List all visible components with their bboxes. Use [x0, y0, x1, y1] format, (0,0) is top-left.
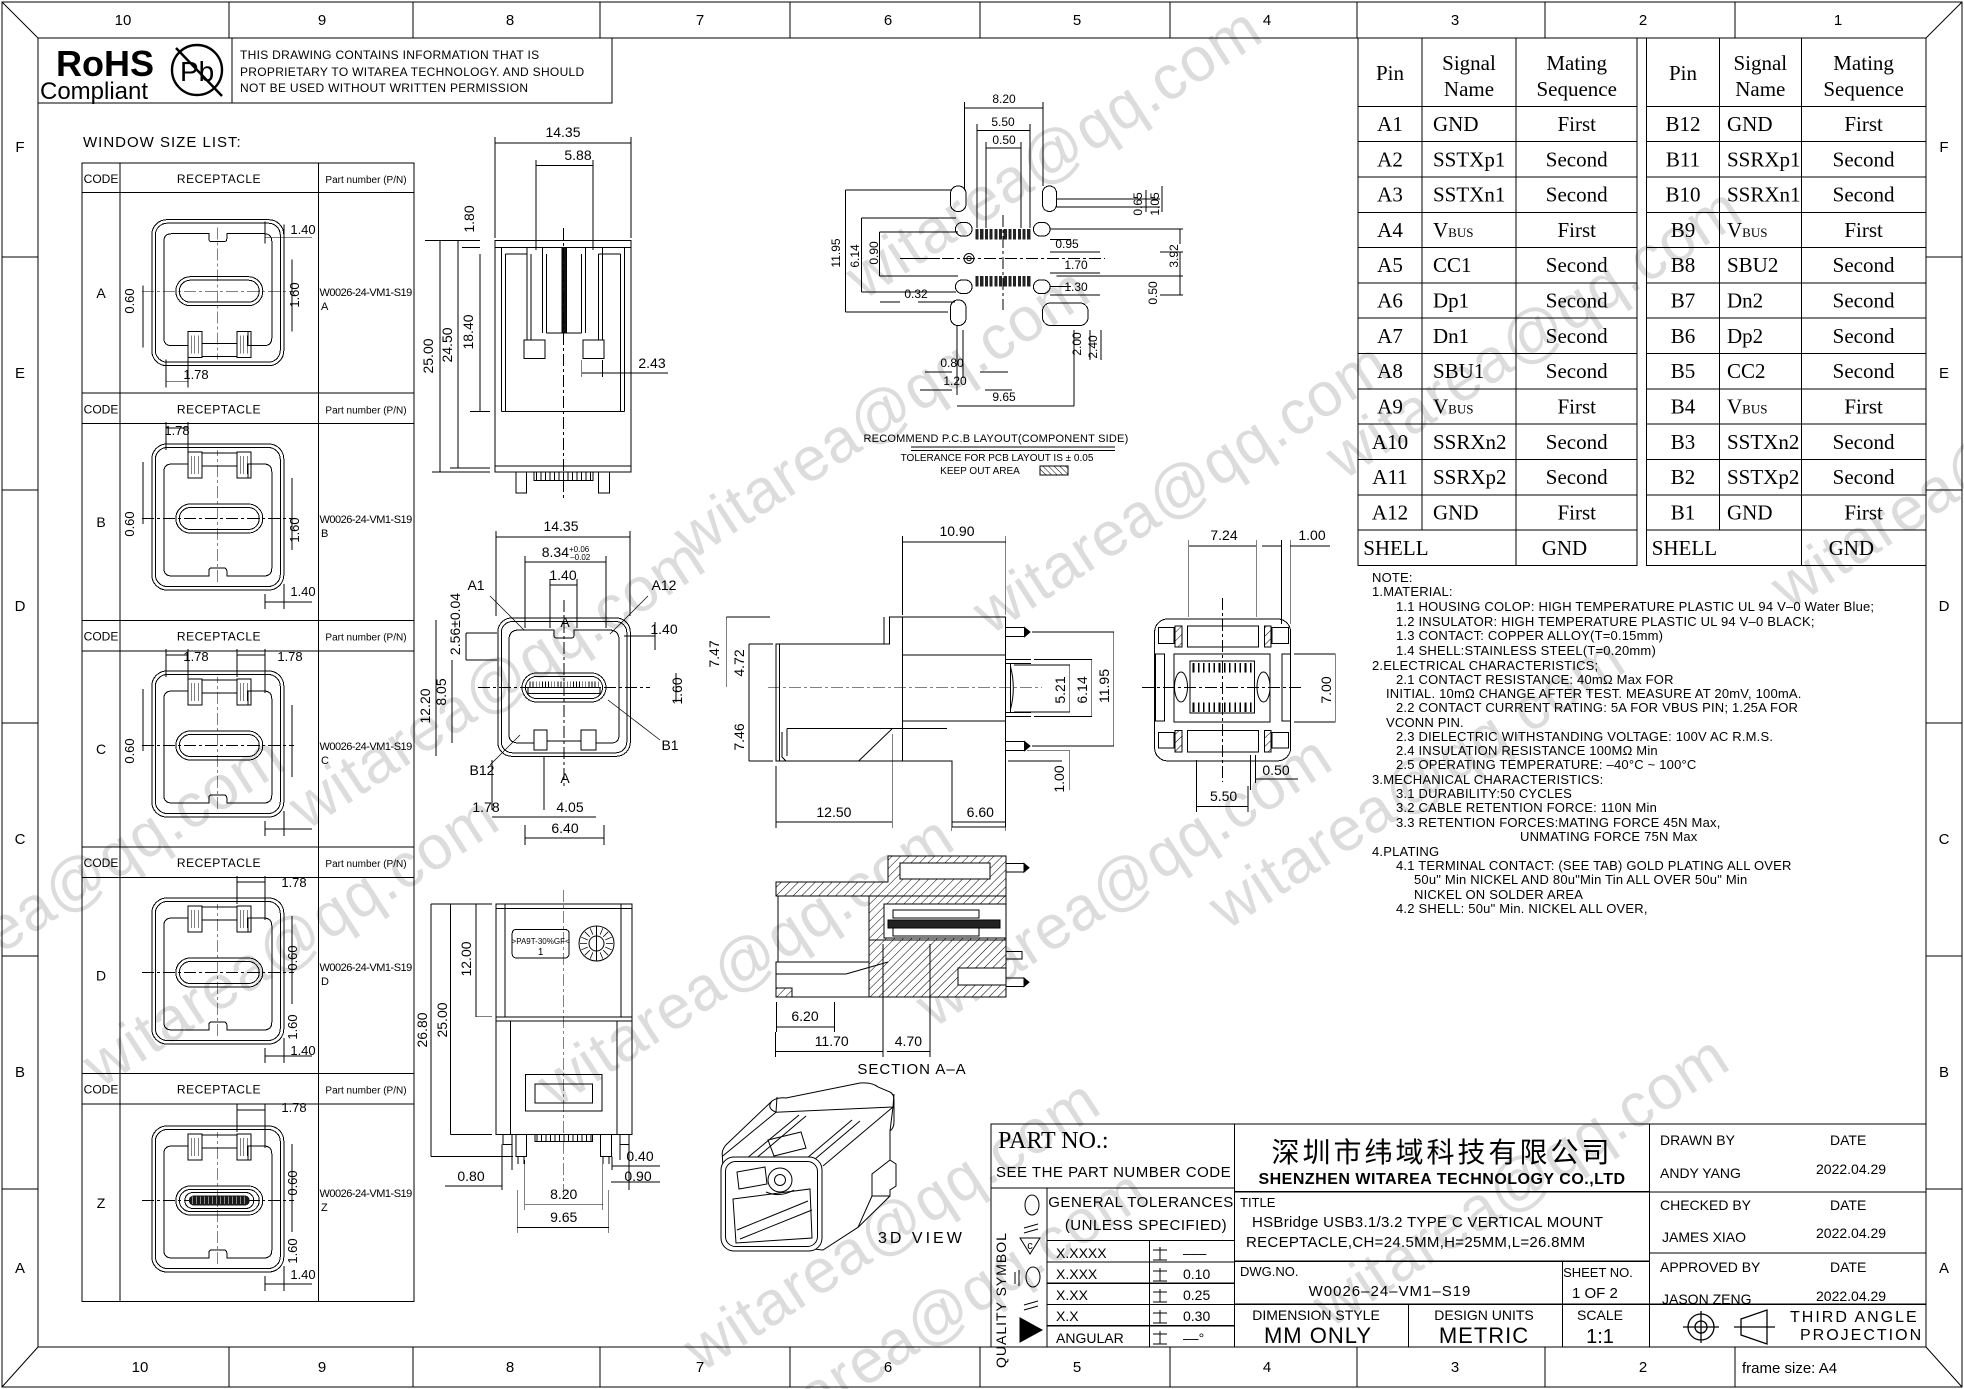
svg-text:TITLE: TITLE	[1240, 1195, 1276, 1210]
svg-text:A10: A10	[1372, 430, 1408, 454]
svg-text:Second: Second	[1833, 324, 1895, 348]
svg-text:X.XX: X.XX	[1056, 1287, 1089, 1303]
svg-text:W0026-24-VM1-S19: W0026-24-VM1-S19	[320, 741, 413, 753]
svg-text:Z: Z	[321, 1202, 328, 1214]
svg-text:Dp2: Dp2	[1727, 324, 1763, 348]
svg-text:3.3 RETENTION FORCES:MATING F: 3.3 RETENTION FORCES:MATING FORCE 45N Ma…	[1396, 815, 1721, 830]
svg-text:Mating: Mating	[1833, 51, 1894, 75]
svg-text:2.4 INSULATION RESISTANCE 100: 2.4 INSULATION RESISTANCE 100MΩ Min	[1396, 743, 1658, 758]
svg-text:1.00: 1.00	[1051, 765, 1067, 792]
svg-text:Pb: Pb	[180, 56, 214, 87]
svg-text:W0026-24-VM1-S19: W0026-24-VM1-S19	[320, 962, 413, 974]
svg-text:A3: A3	[1377, 183, 1403, 207]
svg-text:PROJECTION: PROJECTION	[1800, 1327, 1923, 1344]
svg-text:Second: Second	[1546, 147, 1608, 171]
svg-text:0.10: 0.10	[1183, 1266, 1210, 1282]
svg-text:2022.04.29: 2022.04.29	[1816, 1225, 1886, 1241]
svg-text:25.00: 25.00	[420, 338, 436, 373]
svg-text:1.60: 1.60	[285, 1014, 300, 1039]
svg-text:11.95: 11.95	[1096, 669, 1112, 703]
svg-text:3: 3	[1451, 1359, 1459, 1376]
svg-text:1.78: 1.78	[183, 649, 208, 664]
svg-text:0.80: 0.80	[940, 356, 964, 370]
svg-text:RECEPTACLE: RECEPTACLE	[177, 172, 261, 186]
svg-text:6.14: 6.14	[848, 244, 862, 268]
svg-text:2.40: 2.40	[1086, 335, 1100, 359]
svg-text:Second: Second	[1833, 430, 1895, 454]
svg-text:A1: A1	[1377, 112, 1403, 136]
svg-text:50u" Min NICKEL AND 80u"Min Ti: 50u" Min NICKEL AND 80u"Min Tin ALL OVER…	[1414, 872, 1747, 887]
svg-text:c: c	[1027, 1240, 1033, 1252]
svg-text:B9: B9	[1671, 218, 1696, 242]
svg-text:RECEPTACLE: RECEPTACLE	[177, 1083, 261, 1097]
svg-text:B: B	[15, 1064, 25, 1081]
svg-text:1.78: 1.78	[281, 875, 306, 890]
svg-text:10: 10	[115, 12, 132, 29]
svg-text:A: A	[96, 285, 106, 301]
svg-text:6.60: 6.60	[967, 804, 994, 820]
svg-text:1.20: 1.20	[943, 374, 967, 388]
svg-text:METRIC: METRIC	[1439, 1323, 1529, 1348]
svg-text:GND: GND	[1433, 112, 1479, 136]
svg-text:DIMENSION STYLE: DIMENSION STYLE	[1252, 1307, 1380, 1323]
svg-text:Name: Name	[1735, 77, 1785, 101]
svg-text:8.20: 8.20	[550, 1186, 577, 1202]
svg-text:0.65: 0.65	[1131, 192, 1145, 216]
svg-text:JAMES XIAO: JAMES XIAO	[1662, 1229, 1746, 1245]
svg-text:5.21: 5.21	[1052, 676, 1068, 703]
svg-text:0.90: 0.90	[624, 1168, 651, 1184]
svg-text:11.70: 11.70	[815, 1033, 849, 1049]
svg-text:(UNLESS SPECIFIED): (UNLESS SPECIFIED)	[1065, 1217, 1227, 1234]
svg-text:Z: Z	[97, 1195, 106, 1211]
svg-text:D: D	[96, 967, 106, 983]
svg-text:18.40: 18.40	[460, 314, 476, 349]
svg-text:1.3 CONTACT: COPPER ALLOY(T=0: 1.3 CONTACT: COPPER ALLOY(T=0.15mm)	[1396, 628, 1663, 643]
svg-text:A12: A12	[652, 577, 677, 593]
svg-text:––°: ––°	[1183, 1330, 1204, 1346]
svg-text:F: F	[15, 139, 24, 156]
svg-text:Signal: Signal	[1442, 51, 1496, 75]
svg-text:CODE: CODE	[84, 856, 119, 870]
svg-text:First: First	[1844, 501, 1883, 525]
svg-text:A4: A4	[1377, 218, 1403, 242]
svg-text:1.MATERIAL:: 1.MATERIAL:	[1372, 584, 1453, 599]
svg-text:NICKEL ON SOLDER AREA: NICKEL ON SOLDER AREA	[1414, 887, 1583, 902]
svg-text:Second: Second	[1546, 253, 1608, 277]
svg-text:Mating: Mating	[1546, 51, 1607, 75]
svg-text:0.60: 0.60	[122, 288, 137, 313]
svg-text:2.5 OPERATING TEMPERATURE: –4: 2.5 OPERATING TEMPERATURE: –40°C ~ 100°C	[1396, 757, 1697, 772]
svg-text:2.56±0.04: 2.56±0.04	[447, 593, 463, 655]
svg-text:W0026-24-VM1-S19: W0026-24-VM1-S19	[320, 287, 413, 299]
svg-text:Compliant: Compliant	[40, 78, 148, 105]
svg-text:B11: B11	[1666, 147, 1700, 171]
svg-text:8: 8	[506, 1359, 514, 1376]
svg-text:7.00: 7.00	[1318, 676, 1334, 703]
svg-text:6: 6	[884, 12, 892, 29]
svg-text:X.X: X.X	[1056, 1308, 1079, 1324]
svg-text:X.XXX: X.XXX	[1056, 1266, 1098, 1282]
svg-text:5.88: 5.88	[564, 147, 591, 163]
svg-text:1.00: 1.00	[1298, 527, 1325, 543]
svg-text:B: B	[321, 528, 328, 540]
svg-text:10.90: 10.90	[939, 523, 974, 539]
svg-text:X.XXXX: X.XXXX	[1056, 1245, 1107, 1261]
svg-text:4.05: 4.05	[556, 799, 583, 815]
svg-text:12.20: 12.20	[417, 688, 433, 723]
svg-text:A11: A11	[1372, 465, 1407, 489]
svg-text:深圳市纬域科技有限公司: 深圳市纬域科技有限公司	[1271, 1137, 1612, 1168]
svg-text:1.40: 1.40	[290, 1267, 315, 1282]
svg-text:B: B	[1939, 1064, 1949, 1081]
svg-text:1.78: 1.78	[164, 423, 189, 438]
svg-text:CC1: CC1	[1433, 253, 1472, 277]
svg-text:C: C	[96, 741, 106, 757]
svg-text:A7: A7	[1377, 324, 1403, 348]
svg-text:SSRXn1: SSRXn1	[1727, 183, 1801, 207]
svg-text:1.60: 1.60	[287, 282, 302, 307]
svg-text:frame size: A4: frame size: A4	[1742, 1360, 1837, 1377]
svg-text:1.80: 1.80	[461, 205, 477, 232]
svg-text:1.78: 1.78	[183, 367, 208, 382]
svg-text:Second: Second	[1546, 289, 1608, 313]
svg-text:0.50: 0.50	[992, 133, 1016, 147]
svg-text:1.1 HOUSING COLOP: HIGH TEMPE: 1.1 HOUSING COLOP: HIGH TEMPERATURE PLAS…	[1396, 599, 1874, 614]
svg-text:0.32: 0.32	[904, 287, 928, 301]
svg-text:B5: B5	[1671, 359, 1696, 383]
svg-text:SSTXn2: SSTXn2	[1727, 430, 1799, 454]
svg-text:0.95: 0.95	[1055, 237, 1079, 251]
svg-text:7.47: 7.47	[706, 640, 722, 667]
svg-text:DATE: DATE	[1830, 1197, 1866, 1213]
svg-text:KEEP OUT AREA: KEEP OUT AREA	[940, 466, 1020, 477]
svg-text:CODE: CODE	[84, 402, 119, 416]
svg-text:3.92: 3.92	[1167, 244, 1181, 268]
svg-text:1.78: 1.78	[277, 649, 302, 664]
svg-text:9: 9	[318, 12, 326, 29]
svg-text:RECEPTACLE: RECEPTACLE	[177, 630, 261, 644]
svg-text:GND: GND	[1542, 536, 1588, 560]
svg-text:2: 2	[1639, 12, 1647, 29]
svg-text:0.60: 0.60	[285, 1170, 300, 1195]
svg-text:CODE: CODE	[84, 172, 119, 186]
svg-text:2.2 CONTACT CURRENT RATING: 5: 2.2 CONTACT CURRENT RATING: 5A FOR VBUS …	[1396, 700, 1798, 715]
svg-text:4.1 TERMINAL CONTACT: (SEE TA: 4.1 TERMINAL CONTACT: (SEE TAB) GOLD PLA…	[1396, 858, 1792, 873]
svg-text:Second: Second	[1833, 183, 1895, 207]
svg-text:A9: A9	[1377, 395, 1403, 419]
svg-text:5: 5	[1073, 1359, 1081, 1376]
svg-text:1.40: 1.40	[290, 222, 315, 237]
svg-text:APPROVED BY: APPROVED BY	[1660, 1259, 1761, 1275]
svg-text:3.MECHANICAL CHARACTERISTICS:: 3.MECHANICAL CHARACTERISTICS:	[1372, 772, 1603, 787]
svg-text:E: E	[15, 365, 25, 382]
svg-text:2022.04.29: 2022.04.29	[1816, 1288, 1886, 1304]
svg-text:0.30: 0.30	[1183, 1308, 1210, 1324]
svg-text:SECTION A–A: SECTION A–A	[857, 1061, 966, 1078]
svg-text:25.00: 25.00	[434, 1002, 450, 1037]
svg-text:–––: –––	[1183, 1245, 1207, 1261]
svg-text:Second: Second	[1546, 465, 1608, 489]
svg-text:A8: A8	[1377, 359, 1403, 383]
svg-text:11.95: 11.95	[829, 238, 843, 267]
svg-text:WINDOW SIZE LIST:: WINDOW SIZE LIST:	[83, 134, 242, 151]
svg-text:12.50: 12.50	[816, 804, 851, 820]
svg-text:D: D	[1939, 598, 1950, 615]
svg-text:1.40: 1.40	[290, 584, 315, 599]
svg-text:8.20: 8.20	[992, 92, 1016, 106]
svg-text:4.PLATING: 4.PLATING	[1372, 844, 1439, 859]
svg-text:NOTE:: NOTE:	[1372, 570, 1413, 585]
svg-text:RECOMMEND P.C.B LAYOUT(COMPONE: RECOMMEND P.C.B LAYOUT(COMPONENT SIDE)	[864, 433, 1129, 445]
svg-text:NOT BE USED WITHOUT WRITTEN PE: NOT BE USED WITHOUT WRITTEN PERMISSION	[240, 81, 528, 95]
svg-text:Dn2: Dn2	[1727, 289, 1763, 313]
svg-text:A2: A2	[1377, 147, 1403, 171]
svg-text:GND: GND	[1829, 536, 1875, 560]
svg-text:1.60: 1.60	[287, 517, 302, 542]
svg-text:Second: Second	[1833, 289, 1895, 313]
svg-text:CODE: CODE	[84, 630, 119, 644]
svg-text:0.80: 0.80	[457, 1168, 484, 1184]
svg-text:CC2: CC2	[1727, 359, 1766, 383]
svg-text:12.00: 12.00	[458, 941, 474, 976]
svg-text:F: F	[1939, 139, 1948, 156]
svg-text:9.65: 9.65	[550, 1209, 577, 1225]
svg-text:0.50: 0.50	[1262, 762, 1289, 778]
svg-text:C: C	[15, 831, 26, 848]
svg-text:9.65: 9.65	[992, 390, 1016, 404]
svg-text:SHENZHEN WITAREA TECHNOLOGY CO: SHENZHEN WITAREA TECHNOLOGY CO.,LTD	[1258, 1171, 1625, 1188]
svg-text:1: 1	[538, 947, 544, 958]
svg-text:4.70: 4.70	[895, 1033, 922, 1049]
svg-text:B2: B2	[1671, 465, 1696, 489]
svg-text:8.34+0.06–0.02: 8.34+0.06–0.02	[542, 544, 591, 562]
svg-text:B12: B12	[1665, 112, 1700, 136]
svg-text:First: First	[1557, 501, 1596, 525]
svg-text:5: 5	[1073, 12, 1081, 29]
svg-text:1.60: 1.60	[669, 677, 685, 704]
svg-text:14.35: 14.35	[545, 124, 580, 140]
svg-text:D: D	[15, 598, 26, 615]
svg-text:Dp1: Dp1	[1433, 289, 1469, 313]
svg-text:SHELL: SHELL	[1652, 536, 1717, 560]
svg-text:9: 9	[318, 1359, 326, 1376]
svg-text:DWG.NO.: DWG.NO.	[1240, 1264, 1299, 1279]
svg-text:Second: Second	[1833, 147, 1895, 171]
svg-text:W0026-24-VM1-S19: W0026-24-VM1-S19	[320, 514, 413, 526]
svg-text:W0026–24–VM1–S19: W0026–24–VM1–S19	[1309, 1283, 1472, 1300]
svg-text:Part number (P/N): Part number (P/N)	[325, 175, 406, 186]
svg-text:SSRXp2: SSRXp2	[1433, 465, 1507, 489]
svg-text:3.2 CABLE RETENTION FORCE: 11: 3.2 CABLE RETENTION FORCE: 110N Min	[1396, 800, 1657, 815]
svg-text:14.35: 14.35	[543, 518, 578, 534]
svg-text:ANDY YANG: ANDY YANG	[1660, 1165, 1741, 1181]
svg-text:4.72: 4.72	[731, 649, 747, 676]
svg-text:SSTXp1: SSTXp1	[1433, 147, 1505, 171]
svg-text:Dn1: Dn1	[1433, 324, 1469, 348]
svg-text:First: First	[1844, 218, 1883, 242]
svg-text:Part number (P/N): Part number (P/N)	[325, 1086, 406, 1097]
svg-text:Second: Second	[1546, 183, 1608, 207]
svg-text:1.60: 1.60	[285, 1238, 300, 1263]
svg-text:First: First	[1557, 395, 1596, 419]
svg-text:7.46: 7.46	[731, 723, 747, 750]
svg-text:2.1 CONTACT RESISTANCE: 40mΩ: 2.1 CONTACT RESISTANCE: 40mΩ Max FOR	[1396, 672, 1674, 687]
svg-text:A: A	[560, 770, 570, 786]
svg-text:0.60: 0.60	[122, 511, 137, 536]
svg-text:First: First	[1557, 218, 1596, 242]
svg-text:24.50: 24.50	[439, 327, 455, 362]
svg-text:0.90: 0.90	[867, 241, 881, 265]
svg-text:B12: B12	[470, 762, 495, 778]
svg-text:4: 4	[1263, 12, 1271, 29]
svg-text:1.40: 1.40	[650, 621, 677, 637]
svg-text:SSTXp2: SSTXp2	[1727, 465, 1799, 489]
svg-text:5.50: 5.50	[1210, 788, 1237, 804]
svg-text:B4: B4	[1671, 395, 1696, 419]
svg-text:1: 1	[1834, 12, 1842, 29]
svg-text:>PA9T-30%GF<: >PA9T-30%GF<	[512, 937, 570, 946]
svg-text:2022.04.29: 2022.04.29	[1816, 1161, 1886, 1177]
svg-text:A5: A5	[1377, 253, 1403, 277]
svg-text:1.4 SHELL:STAINLESS STEEL(T=0: 1.4 SHELL:STAINLESS STEEL(T=0.20mm)	[1396, 643, 1656, 658]
svg-text:PART NO.:: PART NO.:	[998, 1128, 1109, 1154]
svg-text:2.00: 2.00	[1070, 332, 1084, 356]
svg-text:1.40: 1.40	[549, 567, 576, 583]
svg-text:SSRXp1: SSRXp1	[1727, 147, 1801, 171]
svg-text:GND: GND	[1433, 501, 1479, 525]
svg-text:1:1: 1:1	[1586, 1326, 1614, 1348]
svg-text:VCONN PIN.: VCONN PIN.	[1386, 715, 1464, 730]
svg-text:B3: B3	[1671, 430, 1696, 454]
svg-text:RECEPTACLE: RECEPTACLE	[177, 402, 261, 416]
svg-text:A: A	[1939, 1260, 1949, 1277]
svg-text:7: 7	[696, 12, 704, 29]
svg-text:QUALITY SYMBOL: QUALITY SYMBOL	[993, 1232, 1009, 1368]
svg-text:SEE THE PART NUMBER CODE: SEE THE PART NUMBER CODE	[996, 1164, 1231, 1181]
svg-text:C: C	[1939, 831, 1950, 848]
svg-text:D: D	[321, 976, 329, 988]
svg-text:Second: Second	[1546, 324, 1608, 348]
svg-text:0.50: 0.50	[1146, 281, 1160, 305]
svg-text:1.30: 1.30	[1064, 280, 1088, 294]
svg-text:Part number (P/N): Part number (P/N)	[325, 633, 406, 644]
svg-text:Part number (P/N): Part number (P/N)	[325, 859, 406, 870]
svg-text:TOLERANCE FOR PCB LAYOUT IS ±: TOLERANCE FOR PCB LAYOUT IS ± 0.05	[901, 453, 1094, 464]
svg-text:1.70: 1.70	[1064, 258, 1088, 272]
svg-text:First: First	[1557, 112, 1596, 136]
svg-text:26.80: 26.80	[414, 1012, 430, 1047]
svg-text:A6: A6	[1377, 289, 1403, 313]
svg-text:B8: B8	[1671, 253, 1696, 277]
svg-text:THIS DRAWING CONTAINS INFORMAT: THIS DRAWING CONTAINS INFORMATION THAT I…	[240, 48, 539, 62]
svg-text:GND: GND	[1727, 112, 1773, 136]
svg-text:GND: GND	[1727, 501, 1773, 525]
svg-text:6: 6	[884, 1359, 892, 1376]
svg-text:B10: B10	[1665, 183, 1700, 207]
svg-text:B1: B1	[1671, 501, 1696, 525]
svg-text:B1: B1	[661, 737, 678, 753]
svg-text:4: 4	[1263, 1359, 1271, 1376]
svg-text:8: 8	[506, 12, 514, 29]
svg-text:Second: Second	[1833, 359, 1895, 383]
svg-text:0.60: 0.60	[285, 945, 300, 970]
svg-text:1 OF 2: 1 OF 2	[1572, 1285, 1618, 1302]
svg-text:10: 10	[132, 1359, 149, 1376]
svg-text:3.1 DURABILITY:50 CYCLES: 3.1 DURABILITY:50 CYCLES	[1396, 786, 1572, 801]
svg-text:ANGULAR: ANGULAR	[1056, 1330, 1124, 1346]
svg-text:SCALE: SCALE	[1577, 1307, 1623, 1323]
svg-text:First: First	[1844, 112, 1883, 136]
svg-text:SHELL: SHELL	[1363, 536, 1428, 560]
svg-text:A: A	[560, 614, 570, 630]
svg-text:SBU2: SBU2	[1727, 253, 1778, 277]
svg-text:Pin: Pin	[1669, 61, 1698, 85]
svg-text:E: E	[1939, 365, 1949, 382]
svg-text:Sequence: Sequence	[1823, 77, 1903, 101]
svg-text:1.78: 1.78	[281, 1100, 306, 1115]
svg-text:DRAWN BY: DRAWN BY	[1660, 1132, 1736, 1148]
svg-text:4.2 SHELL: 50u" Min. NICKEL A: 4.2 SHELL: 50u" Min. NICKEL ALL OVER,	[1396, 901, 1648, 916]
svg-text:THIRD ANGLE: THIRD ANGLE	[1790, 1309, 1919, 1326]
svg-text:2.43: 2.43	[638, 355, 665, 371]
svg-text:A: A	[321, 301, 329, 313]
svg-text:2.ELECTRICAL CHARACTERISTICS;: 2.ELECTRICAL CHARACTERISTICS;	[1372, 658, 1598, 673]
svg-text:B: B	[96, 514, 105, 530]
svg-text:DATE: DATE	[1830, 1132, 1866, 1148]
svg-text:3D VIEW: 3D VIEW	[878, 1230, 965, 1247]
svg-text:MM ONLY: MM ONLY	[1264, 1323, 1372, 1348]
svg-text:C: C	[321, 755, 329, 767]
svg-text:A: A	[15, 1260, 25, 1277]
svg-text:2.3 DIELECTRIC WITHSTANDING V: 2.3 DIELECTRIC WITHSTANDING VOLTAGE: 100…	[1396, 729, 1773, 744]
svg-text:CODE: CODE	[84, 1083, 119, 1097]
svg-text:First: First	[1844, 395, 1883, 419]
svg-text:SSRXn2: SSRXn2	[1433, 430, 1507, 454]
svg-text:Part number (P/N): Part number (P/N)	[325, 405, 406, 416]
svg-text:SBU1: SBU1	[1433, 359, 1484, 383]
svg-text:DATE: DATE	[1830, 1259, 1866, 1275]
svg-text:CHECKED BY: CHECKED BY	[1660, 1197, 1752, 1213]
svg-text:Second: Second	[1833, 465, 1895, 489]
svg-text:Second: Second	[1833, 253, 1895, 277]
svg-text:2: 2	[1639, 1359, 1647, 1376]
svg-text:B7: B7	[1671, 289, 1696, 313]
svg-text:B6: B6	[1671, 324, 1696, 348]
svg-text:1.05: 1.05	[1148, 192, 1162, 216]
svg-text:RECEPTACLE,CH=24.5MM,H=25MM,L=: RECEPTACLE,CH=24.5MM,H=25MM,L=26.8MM	[1246, 1234, 1585, 1251]
svg-text:0.25: 0.25	[1183, 1287, 1210, 1303]
svg-text:1.78: 1.78	[472, 799, 499, 815]
svg-text:Pin: Pin	[1376, 61, 1405, 85]
svg-text:RECEPTACLE: RECEPTACLE	[177, 856, 261, 870]
svg-text:HSBridge USB3.1/3.2 TYPE C VER: HSBridge USB3.1/3.2 TYPE C VERTICAL MOUN…	[1252, 1214, 1603, 1231]
svg-text:1.2 INSULATOR: HIGH TEMPERATU: 1.2 INSULATOR: HIGH TEMPERATURE PLASTIC …	[1396, 614, 1815, 629]
svg-text:7.24: 7.24	[1210, 527, 1237, 543]
svg-text:Name: Name	[1444, 77, 1494, 101]
svg-text:5.50: 5.50	[991, 115, 1015, 129]
svg-text:3: 3	[1451, 12, 1459, 29]
svg-text:0.60: 0.60	[122, 738, 137, 763]
svg-text:Second: Second	[1546, 430, 1608, 454]
svg-text:A1: A1	[467, 577, 484, 593]
svg-text:Second: Second	[1546, 359, 1608, 383]
svg-text:8.05: 8.05	[433, 678, 449, 705]
svg-text:PROPRIETARY TO WITAREA TECHNOL: PROPRIETARY TO WITAREA TECHNOLOGY. AND S…	[240, 65, 585, 79]
svg-text:Signal: Signal	[1733, 51, 1787, 75]
svg-text:7: 7	[696, 1359, 704, 1376]
svg-text:SSTXn1: SSTXn1	[1433, 183, 1505, 207]
